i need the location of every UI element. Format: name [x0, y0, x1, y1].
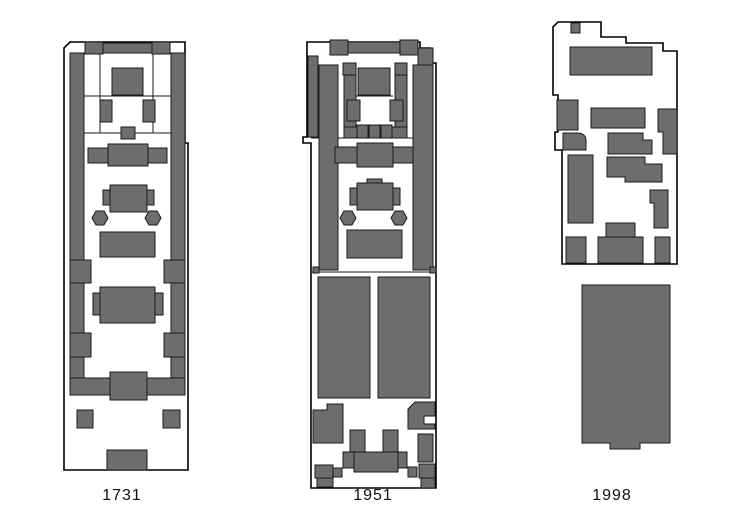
- top-bar-center: [103, 43, 152, 53]
- row-center: [357, 143, 393, 167]
- flank-block-right: [390, 100, 403, 121]
- flank-block-right: [143, 100, 155, 122]
- pylon-left: [350, 430, 365, 452]
- plan-label-1998: 1998: [592, 487, 632, 505]
- west-block-1: [557, 100, 578, 130]
- row-left: [88, 148, 108, 163]
- diagram-canvas: 1731 1951 1998: [0, 0, 731, 524]
- altar-tab-left: [350, 188, 357, 205]
- center-block-1: [591, 108, 645, 128]
- plan-1731: [64, 42, 188, 470]
- porch-center: [354, 452, 398, 472]
- top-square: [571, 23, 580, 33]
- annex-left: [313, 404, 343, 443]
- plan-1951: [303, 40, 436, 488]
- west-tall-block: [568, 155, 593, 223]
- annex-right: [408, 402, 435, 429]
- mid-tab-left: [93, 293, 100, 315]
- top-bar-right: [152, 42, 170, 54]
- small-square: [121, 127, 135, 139]
- plan-label-1951: 1951: [353, 487, 393, 505]
- left-strip: [308, 56, 318, 137]
- hex-right: [145, 211, 161, 225]
- altar-tab-right: [393, 188, 400, 205]
- top-bar-right: [400, 40, 418, 55]
- gate-block: [107, 450, 147, 470]
- corner-block-sw-3: [317, 478, 333, 487]
- south-center-block: [598, 237, 643, 263]
- hex-right: [391, 211, 407, 225]
- hall-block-left: [318, 277, 370, 398]
- organ-tab-right: [147, 190, 154, 205]
- step-square-2: [369, 125, 380, 138]
- corner-block: [418, 48, 433, 65]
- entrance-block: [110, 372, 147, 400]
- wall-bump-right-1: [164, 260, 185, 283]
- wall-bump-left-2: [70, 333, 91, 357]
- top-bar-left: [330, 40, 348, 55]
- right-wall: [413, 65, 433, 270]
- row-center: [108, 144, 148, 166]
- organ-block: [110, 185, 147, 212]
- south-block-right: [655, 237, 670, 263]
- north-block: [570, 47, 652, 75]
- south-center-tab: [606, 223, 635, 237]
- corner-block-se-1: [408, 467, 417, 477]
- notch-right: [430, 267, 436, 273]
- row-right: [148, 148, 167, 163]
- step-square-1: [357, 125, 368, 138]
- inner-cap-right: [395, 63, 407, 75]
- hall-block-right: [378, 277, 430, 398]
- plan-1998: [553, 22, 677, 449]
- inner-cap-left: [343, 63, 356, 75]
- corner-block-se-2: [419, 464, 435, 478]
- row-right: [393, 147, 413, 163]
- notch-left: [313, 267, 319, 273]
- hex-left: [340, 211, 356, 225]
- plan-label-1731: 1731: [102, 487, 142, 505]
- south-block-left: [566, 237, 586, 263]
- mid-block: [100, 287, 155, 323]
- altar-block: [357, 183, 393, 210]
- wall-bump-left-1: [70, 260, 91, 283]
- row-left: [335, 147, 357, 163]
- wall-bump-right-2: [164, 333, 185, 357]
- pylon-right: [383, 430, 398, 452]
- top-bar-left: [85, 42, 103, 54]
- central-block: [100, 232, 155, 257]
- central-block: [347, 230, 402, 258]
- flank-block-left: [100, 100, 112, 122]
- left-wall: [319, 65, 338, 270]
- floor-plans-svg: [0, 0, 731, 524]
- hex-left: [92, 211, 108, 225]
- chancel-block: [112, 68, 143, 95]
- corner-block-sw-1: [315, 465, 333, 478]
- organ-tab-left: [103, 190, 110, 205]
- new-hall-block: [582, 285, 670, 449]
- step-square-3: [381, 125, 392, 138]
- corner-block-se-3: [421, 478, 435, 488]
- west-block-round: [563, 133, 586, 150]
- right-vert-block: [418, 434, 433, 462]
- court-square-left: [77, 410, 93, 428]
- mid-tab-right: [155, 293, 163, 315]
- corner-block-sw-2: [333, 468, 342, 477]
- chancel-block: [358, 68, 390, 95]
- top-bar-center: [348, 42, 400, 53]
- court-square-right: [163, 410, 180, 428]
- flank-block-left: [347, 100, 360, 121]
